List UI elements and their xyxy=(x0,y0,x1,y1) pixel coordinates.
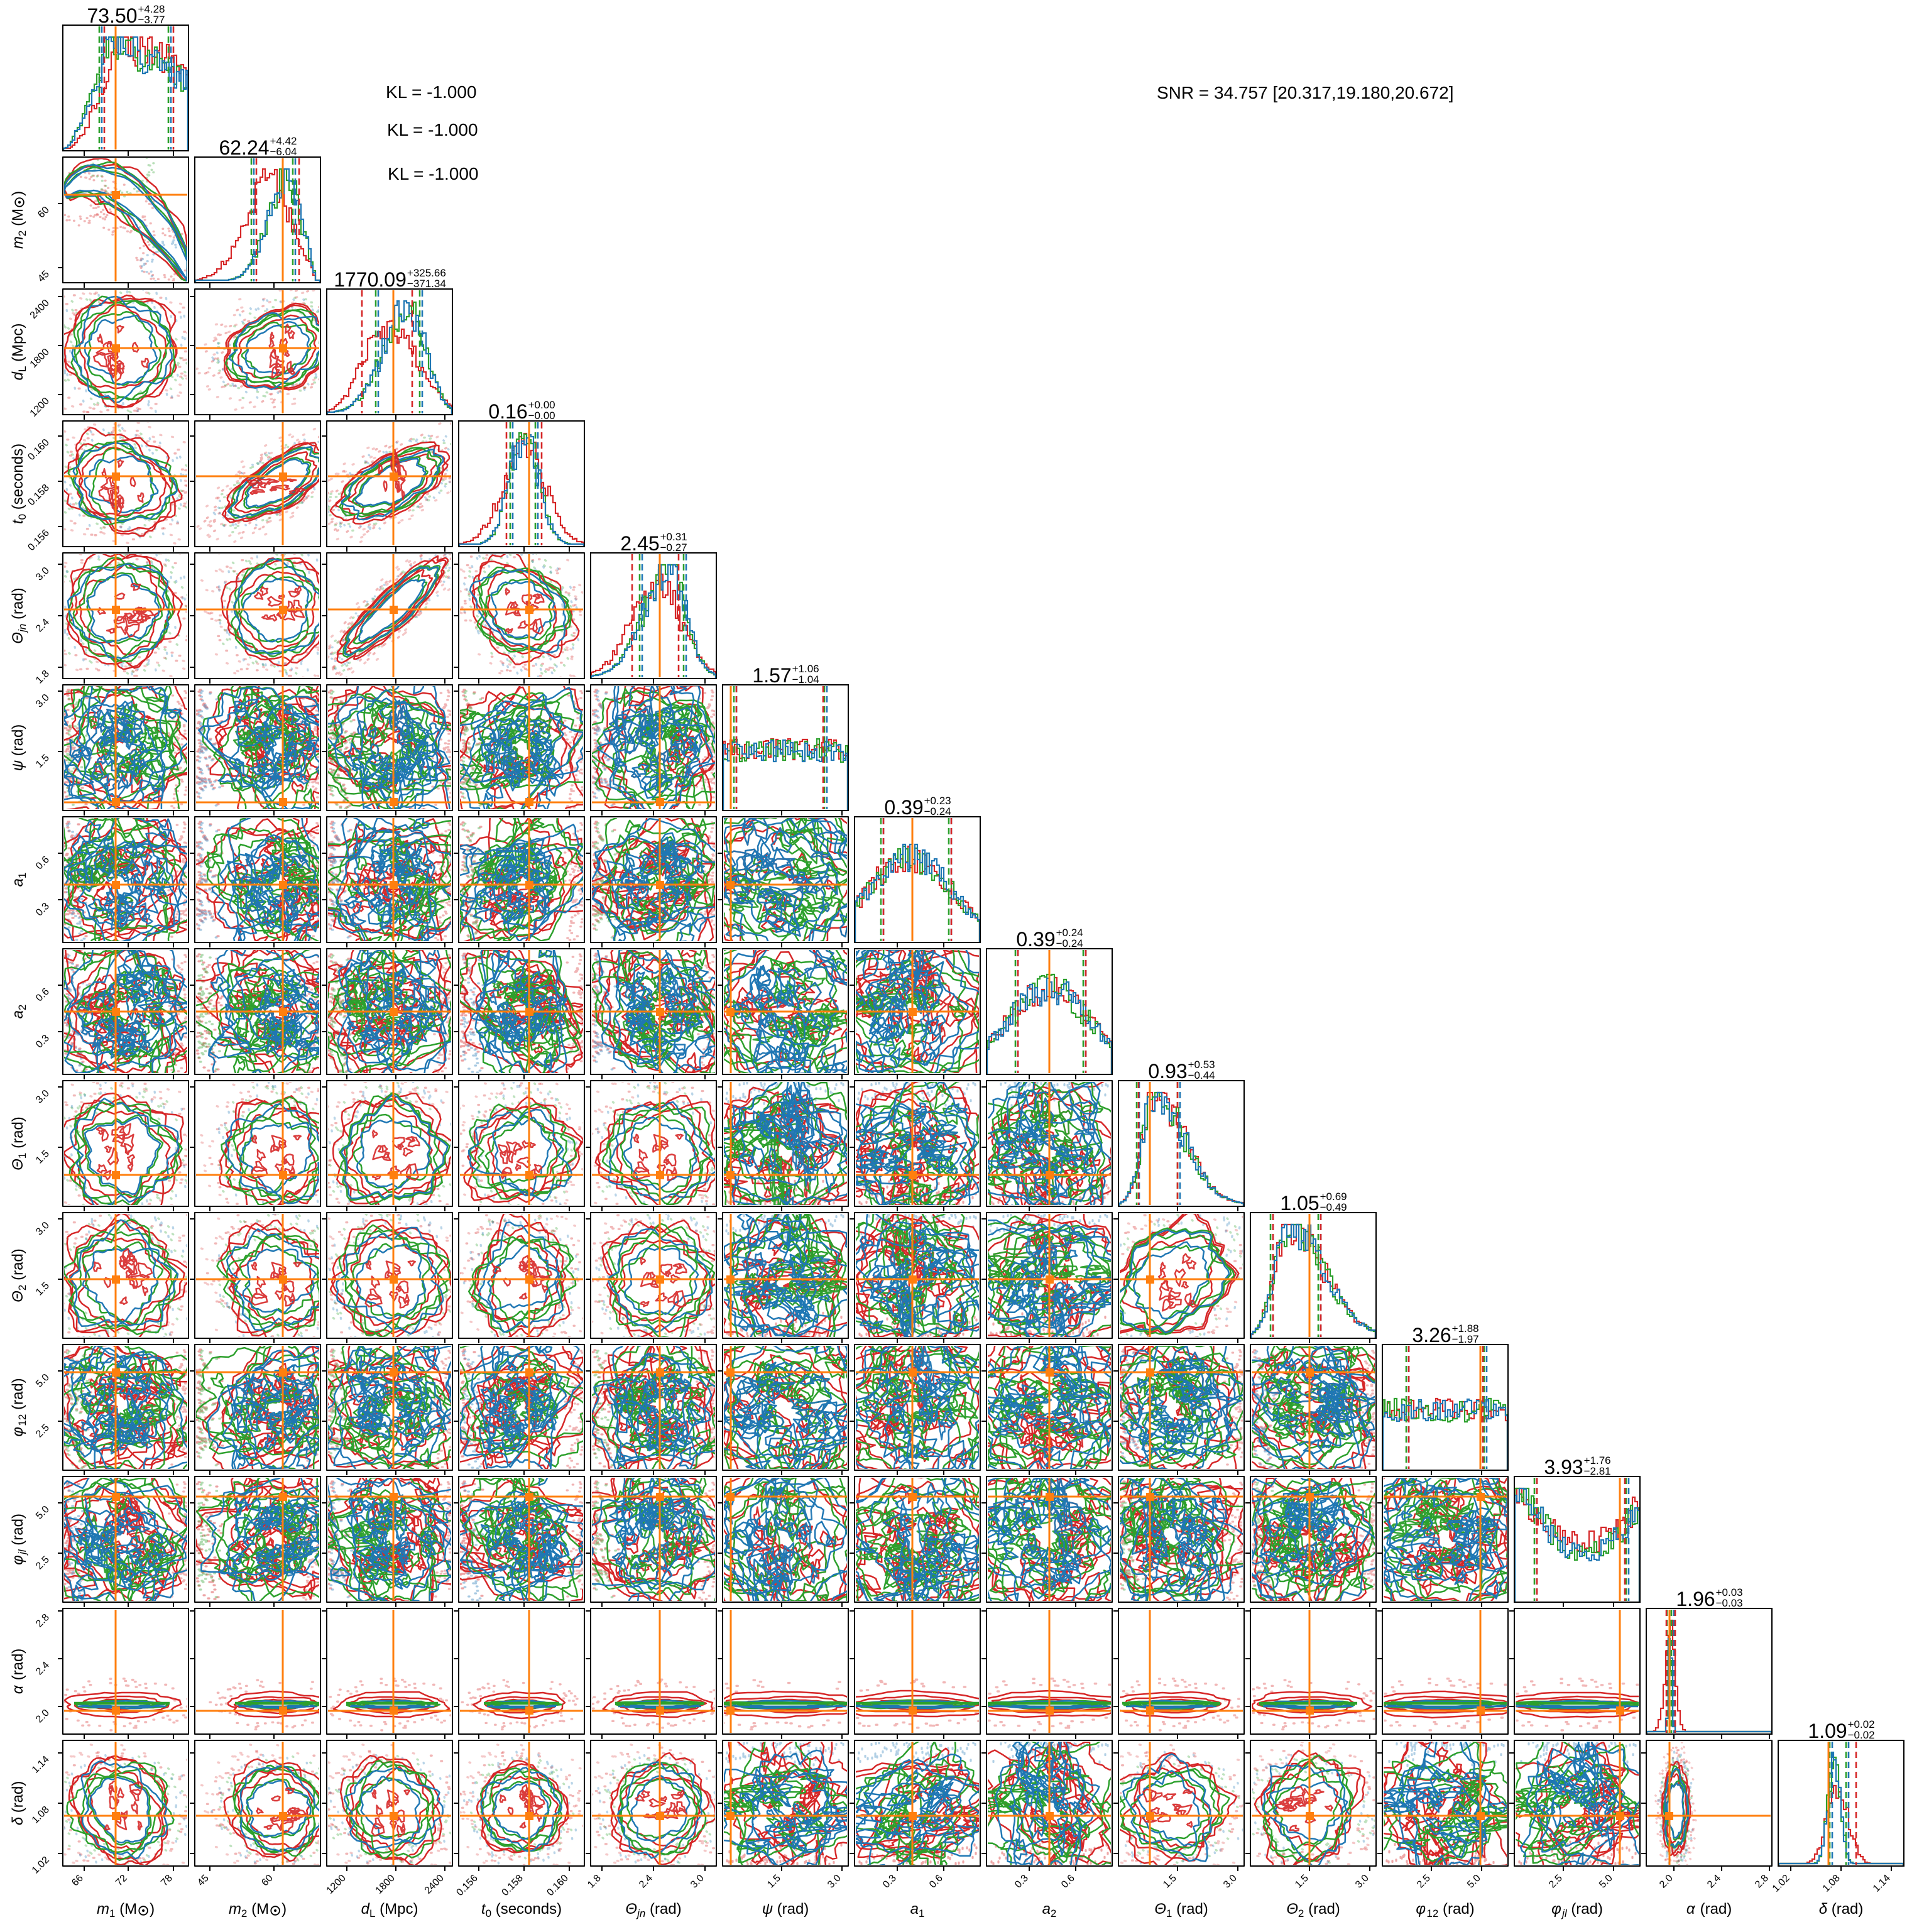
svg-text:3.26: 3.26 xyxy=(1412,1324,1451,1346)
svg-text:(rad): (rad) xyxy=(1700,1901,1732,1918)
svg-text:1.09: 1.09 xyxy=(1808,1720,1847,1742)
svg-text:2: 2 xyxy=(1298,1907,1304,1919)
svg-text:2: 2 xyxy=(1051,1907,1056,1919)
svg-text:0: 0 xyxy=(16,514,28,520)
svg-text:−371.34: −371.34 xyxy=(407,278,446,290)
svg-text:1: 1 xyxy=(1166,1907,1172,1919)
svg-text:(rad): (rad) xyxy=(1176,1901,1208,1918)
svg-text:a: a xyxy=(910,1901,919,1918)
svg-text:−0.27: −0.27 xyxy=(660,542,687,554)
svg-text:12: 12 xyxy=(16,1414,28,1426)
svg-text:(rad): (rad) xyxy=(9,1781,26,1813)
svg-text:12: 12 xyxy=(1426,1907,1438,1919)
svg-text:(rad): (rad) xyxy=(1832,1901,1864,1918)
svg-text:(rad): (rad) xyxy=(9,1116,26,1149)
svg-text:2: 2 xyxy=(16,1285,28,1291)
svg-text:−3.77: −3.77 xyxy=(138,14,165,26)
svg-text:(rad): (rad) xyxy=(650,1901,682,1918)
svg-text:−0.00: −0.00 xyxy=(528,410,555,422)
svg-text:jl: jl xyxy=(1561,1907,1568,1919)
svg-text:jl: jl xyxy=(16,1549,28,1556)
svg-text:−2.81: −2.81 xyxy=(1584,1465,1611,1477)
svg-text:(rad): (rad) xyxy=(9,1649,26,1681)
svg-text:KL = -1.000: KL = -1.000 xyxy=(388,164,479,183)
svg-text:φ: φ xyxy=(9,1555,26,1565)
svg-text:0.93: 0.93 xyxy=(1148,1060,1187,1083)
svg-text:a: a xyxy=(1042,1901,1051,1918)
svg-text:L: L xyxy=(16,366,28,372)
svg-text:Θ: Θ xyxy=(1286,1901,1298,1918)
svg-text:1.05: 1.05 xyxy=(1280,1192,1319,1214)
svg-text:KL = -1.000: KL = -1.000 xyxy=(387,120,478,139)
svg-text:1: 1 xyxy=(16,1153,28,1159)
svg-text:(rad): (rad) xyxy=(9,1378,26,1410)
svg-text:a: a xyxy=(9,878,26,887)
svg-text:(Mpc): (Mpc) xyxy=(380,1901,418,1918)
svg-text:(M: (M xyxy=(9,209,26,226)
svg-text:L: L xyxy=(369,1907,375,1919)
svg-text:(rad): (rad) xyxy=(9,724,26,756)
svg-text:(seconds): (seconds) xyxy=(496,1901,562,1918)
svg-text:(Mpc): (Mpc) xyxy=(9,324,26,362)
svg-text:−1.97: −1.97 xyxy=(1452,1333,1479,1345)
svg-text:0.39: 0.39 xyxy=(1016,928,1055,951)
svg-text:(seconds): (seconds) xyxy=(9,444,26,510)
svg-text:KL = -1.000: KL = -1.000 xyxy=(386,82,477,102)
svg-text:2.45: 2.45 xyxy=(620,532,659,555)
svg-text:−1.04: −1.04 xyxy=(792,674,819,685)
svg-text:1: 1 xyxy=(109,1907,115,1919)
svg-text:d: d xyxy=(9,371,26,380)
svg-text:0: 0 xyxy=(486,1907,491,1919)
svg-text:φ: φ xyxy=(9,1427,26,1437)
svg-text:−0.24: −0.24 xyxy=(924,805,951,817)
svg-text:1.57: 1.57 xyxy=(752,664,791,687)
svg-text:(rad): (rad) xyxy=(1571,1901,1603,1918)
svg-text:2: 2 xyxy=(16,231,28,236)
svg-text:Θ: Θ xyxy=(9,632,26,644)
svg-text:(M: (M xyxy=(119,1901,137,1918)
svg-text:3.93: 3.93 xyxy=(1544,1456,1583,1478)
svg-text:0.16: 0.16 xyxy=(488,400,527,423)
svg-text:2: 2 xyxy=(16,1005,28,1010)
svg-text:1: 1 xyxy=(16,873,28,878)
svg-text:−0.44: −0.44 xyxy=(1188,1069,1215,1081)
svg-text:1770.09: 1770.09 xyxy=(334,268,407,291)
svg-text:): ) xyxy=(281,1901,287,1918)
svg-text:jn: jn xyxy=(636,1907,645,1919)
svg-text:Θ: Θ xyxy=(9,1291,26,1302)
svg-text:Θ: Θ xyxy=(9,1159,26,1171)
svg-text:(rad): (rad) xyxy=(1308,1901,1340,1918)
svg-text:δ: δ xyxy=(1819,1901,1828,1918)
svg-text:Θ: Θ xyxy=(1154,1901,1166,1918)
svg-text:ψ: ψ xyxy=(9,760,26,771)
svg-text:ψ: ψ xyxy=(762,1901,773,1918)
svg-text:−0.02: −0.02 xyxy=(1848,1729,1875,1741)
svg-text:(rad): (rad) xyxy=(777,1901,809,1918)
svg-text:73.50: 73.50 xyxy=(87,4,138,27)
svg-text:−0.49: −0.49 xyxy=(1320,1201,1347,1213)
svg-text:a: a xyxy=(9,1010,26,1018)
svg-text:α: α xyxy=(1686,1901,1696,1918)
svg-text:): ) xyxy=(150,1901,155,1918)
svg-text:−0.24: −0.24 xyxy=(1056,937,1083,949)
svg-text:−0.03: −0.03 xyxy=(1716,1597,1743,1609)
svg-text:SNR = 34.757 [20.317,19.180,20: SNR = 34.757 [20.317,19.180,20.672] xyxy=(1157,83,1454,102)
svg-text:0.39: 0.39 xyxy=(884,796,923,819)
svg-text:−6.04: −6.04 xyxy=(270,146,297,158)
svg-text:d: d xyxy=(361,1901,370,1918)
svg-text:(rad): (rad) xyxy=(9,1248,26,1280)
svg-text:1.96: 1.96 xyxy=(1676,1588,1715,1610)
svg-text:jn: jn xyxy=(16,624,28,633)
svg-text:φ: φ xyxy=(1551,1901,1561,1918)
svg-text:1: 1 xyxy=(919,1907,924,1919)
svg-text:2: 2 xyxy=(241,1907,247,1919)
svg-text:(M: (M xyxy=(251,1901,269,1918)
svg-text:m: m xyxy=(229,1901,241,1918)
svg-text:Θ: Θ xyxy=(625,1901,637,1918)
svg-text:m: m xyxy=(9,236,26,249)
svg-text:α: α xyxy=(9,1684,26,1694)
svg-text:δ: δ xyxy=(9,1816,26,1825)
svg-text:m: m xyxy=(97,1901,109,1918)
svg-text:): ) xyxy=(9,191,26,196)
svg-text:(rad): (rad) xyxy=(1443,1901,1475,1918)
svg-text:62.24: 62.24 xyxy=(219,136,270,159)
svg-text:(rad): (rad) xyxy=(9,587,26,619)
svg-text:φ: φ xyxy=(1416,1901,1426,1918)
svg-text:(rad): (rad) xyxy=(9,1514,26,1546)
